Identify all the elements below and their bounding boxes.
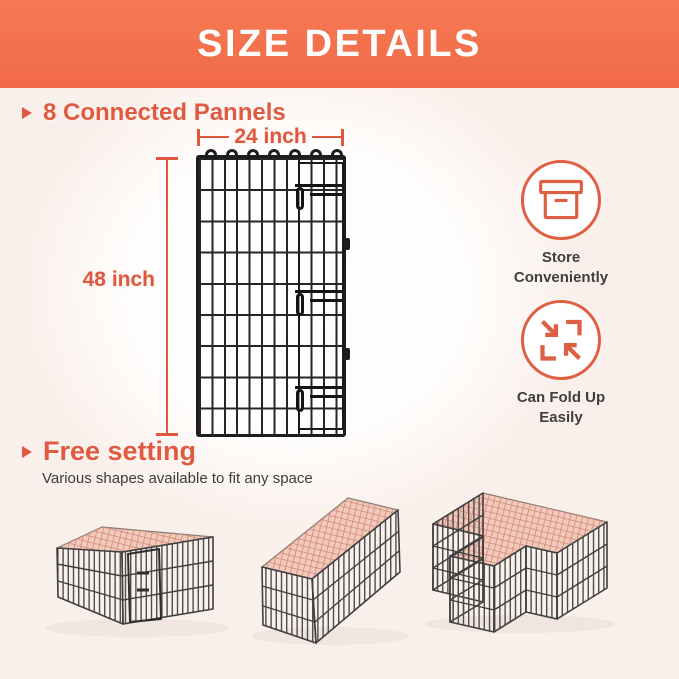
square-pen-illustration <box>57 527 213 624</box>
size-details-infographic: SIZE DETAILS 8 Connected Pannels 24 inch… <box>0 0 679 679</box>
l-shaped-pen-illustration <box>433 493 607 632</box>
rectangle-pen-illustration <box>262 498 400 643</box>
pen-shapes-illustrations <box>0 0 679 679</box>
